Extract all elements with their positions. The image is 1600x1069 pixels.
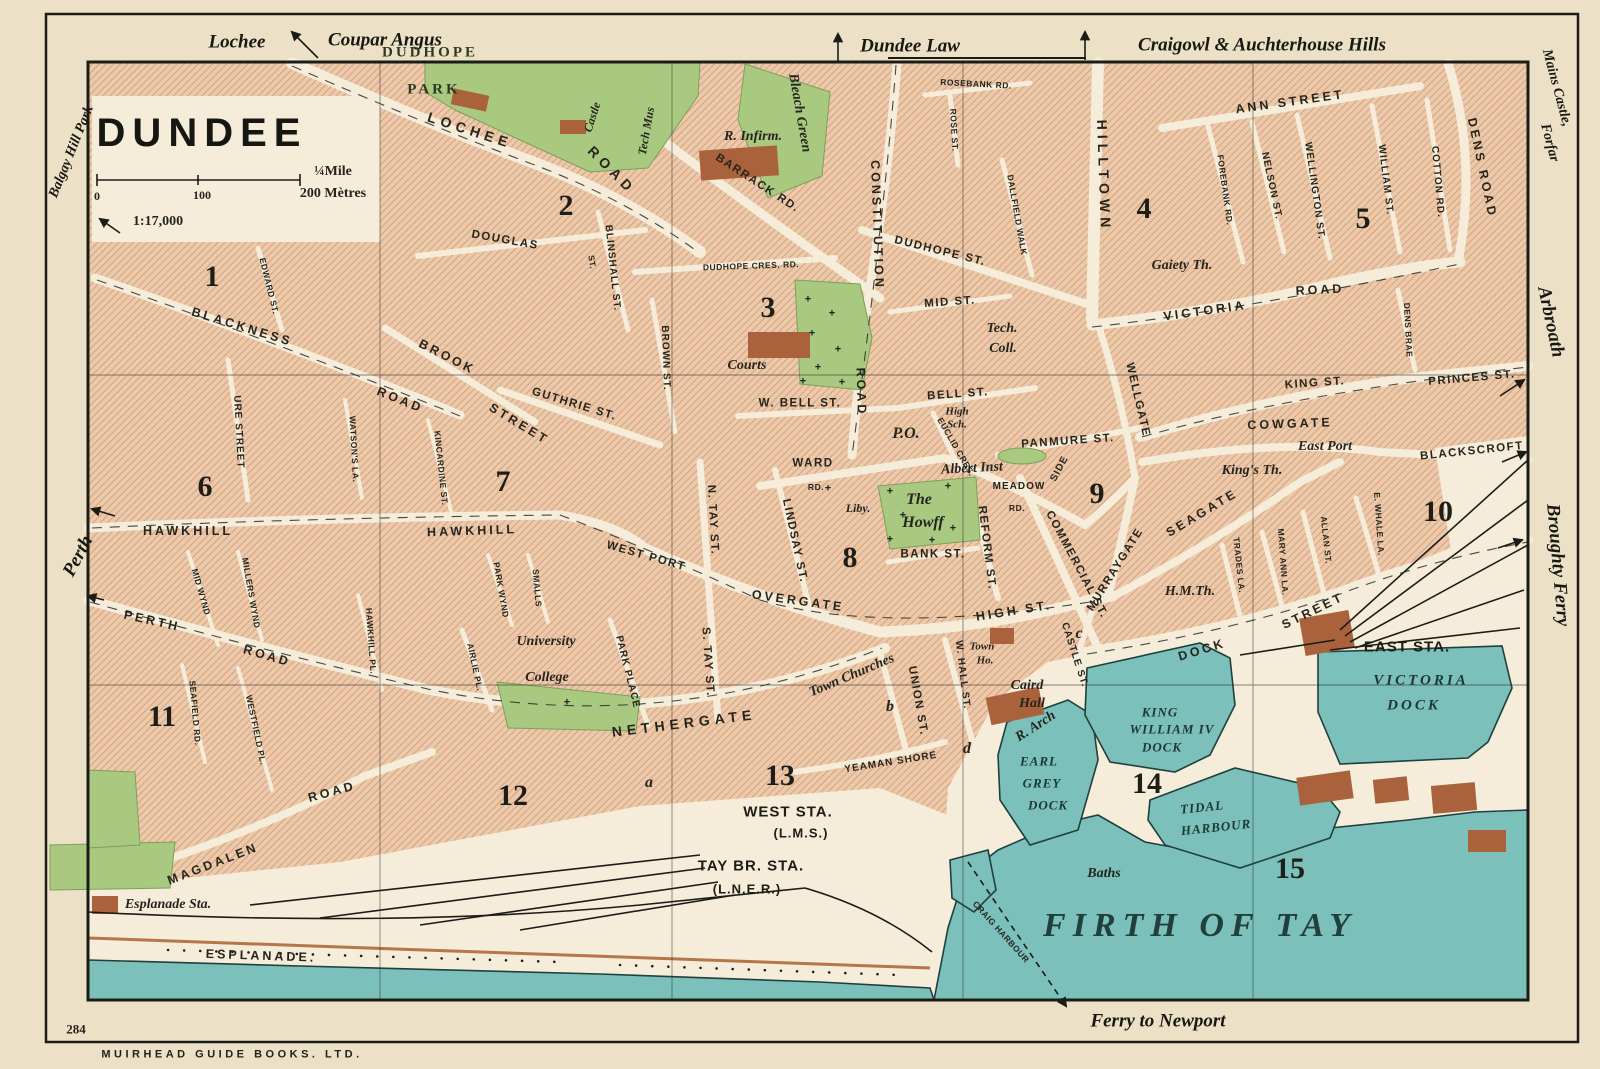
map-label: P.O.	[892, 426, 919, 442]
map-label: 12	[498, 781, 528, 811]
map-label: PARK	[407, 83, 460, 98]
map-label: Ferry to Newport	[1090, 1012, 1225, 1031]
map-label: MEADOW	[993, 482, 1046, 492]
map-label: +	[825, 484, 831, 495]
map-label: +	[815, 363, 821, 374]
map-label: 8	[843, 543, 858, 573]
map-label: 7	[496, 467, 511, 497]
map-label: (L.M.S.)	[774, 827, 829, 840]
map-label: N. TAY ST.	[704, 485, 719, 556]
map-label: DOCK	[1142, 741, 1182, 754]
map-label: W. BELL ST.	[759, 398, 842, 410]
plate-number: 284	[66, 1023, 86, 1036]
map-label: +	[887, 535, 893, 546]
map-artwork	[0, 0, 1600, 1069]
map-label: +	[800, 377, 806, 388]
map-title: DUNDEE	[97, 113, 308, 153]
map-label: +	[805, 295, 811, 306]
map-label: 15	[1275, 854, 1305, 884]
map-label: RD.	[1009, 504, 1025, 513]
map-label: Town	[970, 642, 995, 653]
map-label: DENS BRAE	[1402, 303, 1413, 358]
map-label: Dundee Law	[860, 37, 960, 56]
map-label: 4	[1137, 194, 1152, 224]
map-label: 9	[1090, 479, 1105, 509]
map-label: FIRTH OF TAY	[1043, 909, 1357, 943]
map-page: LocheeCoupar AngusDundee LawCraigowl & A…	[0, 0, 1600, 1069]
map-label: ROAD	[854, 367, 868, 416]
map-label: 6	[198, 472, 213, 502]
map-label: +	[839, 378, 845, 389]
map-label: HAWKHILL	[427, 523, 517, 539]
map-label: DOCK	[1028, 799, 1068, 812]
map-label: +	[809, 329, 815, 340]
map-label: 11	[148, 702, 176, 732]
map-label: Liby.	[846, 502, 871, 514]
map-label: b	[886, 699, 894, 715]
map-label: DUDHOPE	[382, 46, 478, 61]
map-label: KING	[1142, 706, 1179, 719]
map-label: (L.N.E.R.)	[713, 883, 782, 896]
scale-metres-label: 200 Mètres	[300, 187, 366, 201]
map-label: COWGATE	[1247, 416, 1333, 431]
map-label: HAWKHILL	[143, 525, 233, 538]
map-label: Gaiety Th.	[1152, 259, 1213, 273]
map-label: c	[1075, 626, 1082, 642]
map-label: Baths	[1087, 867, 1120, 881]
map-label: Caird	[1011, 679, 1044, 693]
map-label: Tech.	[987, 322, 1018, 336]
map-label: Ho.	[977, 656, 994, 667]
map-label: R. Infirm.	[724, 130, 782, 144]
map-label: +	[829, 309, 835, 320]
map-label: +	[945, 482, 951, 493]
map-label: BANK ST.	[900, 549, 965, 561]
map-label: Howff	[902, 515, 943, 531]
map-label: ROSE ST.	[949, 108, 960, 151]
map-label: ST.	[587, 254, 598, 269]
map-label: Hall	[1019, 697, 1045, 711]
map-label: Courts	[728, 359, 767, 373]
map-label: EARL	[1020, 755, 1058, 768]
map-label: GREY	[1023, 777, 1062, 790]
map-label: ROAD	[1295, 282, 1344, 297]
map-label: East Port	[1298, 440, 1352, 454]
map-label: Craigowl & Auchterhouse Hills	[1138, 36, 1386, 55]
scale-ratio-label: 1:17,000	[133, 215, 183, 229]
map-label: +	[887, 487, 893, 498]
map-label: +	[950, 524, 956, 535]
map-label: RD.	[808, 483, 824, 492]
map-label: HILLTOWN	[1095, 120, 1113, 233]
map-label: WARD	[792, 458, 833, 470]
map-label: 13	[765, 761, 795, 791]
map-label: H.M.Th.	[1165, 585, 1215, 599]
map-label: WILLIAM IV	[1130, 723, 1215, 736]
map-label: a	[645, 775, 653, 791]
publisher-imprint: MUIRHEAD GUIDE BOOKS. LTD.	[101, 1050, 362, 1061]
map-label: 10	[1423, 497, 1453, 527]
map-label: VICTORIA	[1373, 674, 1468, 689]
map-label: WEST STA.	[743, 805, 833, 820]
map-label: King's Th.	[1222, 464, 1283, 478]
map-label: Coll.	[989, 342, 1017, 356]
map-label: +	[835, 345, 841, 356]
map-label: +	[900, 511, 906, 522]
map-label: d	[963, 741, 971, 757]
map-label: 3	[761, 293, 776, 323]
map-label: 2	[559, 191, 574, 221]
map-label: 14	[1132, 769, 1162, 799]
map-label: +	[929, 536, 935, 547]
scale-hundred-label: 100	[193, 189, 211, 201]
map-label: College	[525, 671, 569, 685]
map-label: SMALLS	[531, 569, 543, 608]
map-label: EAST STA.	[1364, 640, 1450, 655]
scale-zero-label: 0	[94, 190, 100, 202]
map-label: High	[945, 407, 968, 418]
map-label: +	[564, 698, 570, 709]
map-label: 5	[1356, 204, 1371, 234]
map-label: Lochee	[209, 33, 266, 52]
scale-mile-label: ¼Mile	[314, 165, 352, 179]
map-label: TAY BR. STA.	[698, 859, 804, 874]
map-label: DOCK	[1387, 699, 1441, 714]
map-label: Esplanade Sta.	[125, 898, 211, 912]
map-label: BROWN ST.	[659, 325, 671, 390]
map-label: The	[906, 492, 932, 508]
map-label: 1	[205, 262, 220, 292]
map-label: University	[516, 635, 575, 649]
